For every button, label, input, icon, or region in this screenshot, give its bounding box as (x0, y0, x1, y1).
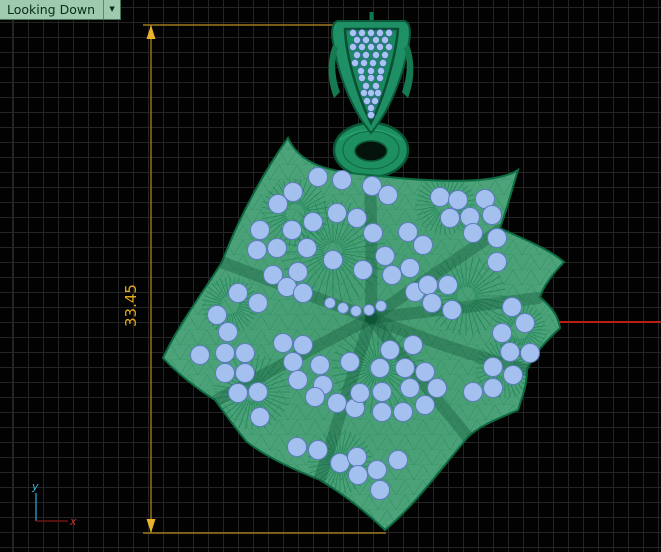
chevron-down-icon: ▼ (109, 6, 114, 13)
dimension-value-text: 33.45 (122, 284, 140, 327)
pendant-bail[interactable] (329, 12, 414, 133)
viewport-title-tab[interactable]: Looking Down ▼ (0, 0, 121, 20)
world-axes-icon: y x (31, 480, 77, 528)
viewport-dropdown-button[interactable]: ▼ (103, 0, 120, 19)
x-axis-label: x (69, 515, 77, 528)
cad-viewport[interactable]: 33.45 (0, 0, 661, 552)
dimension-arrow-down (147, 519, 156, 533)
pendant-flower[interactable] (140, 120, 590, 550)
cad-canvas[interactable]: 33.45 (0, 0, 661, 552)
dimension-arrow-up (147, 25, 156, 39)
y-axis-label: y (31, 480, 39, 493)
viewport-title-label: Looking Down (0, 0, 103, 19)
